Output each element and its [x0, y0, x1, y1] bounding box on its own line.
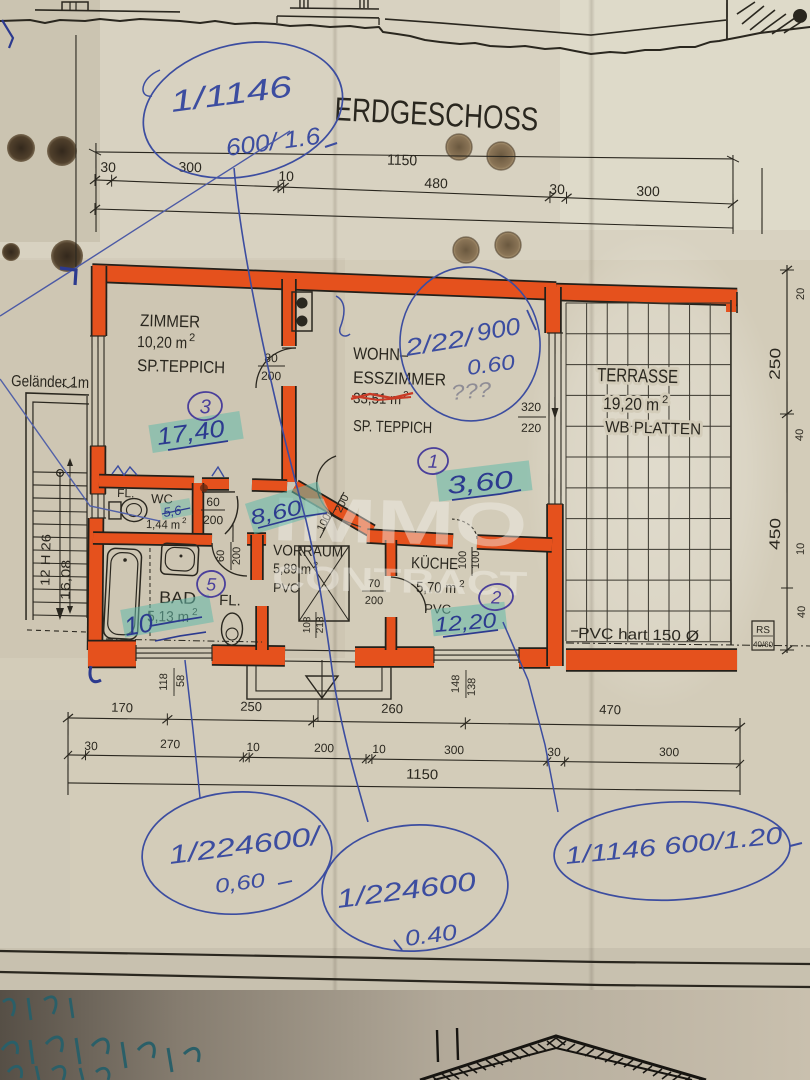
- svg-text:60: 60: [206, 495, 220, 509]
- svg-text:2: 2: [182, 516, 187, 525]
- svg-text:30: 30: [549, 181, 565, 197]
- svg-text:260: 260: [381, 701, 403, 717]
- svg-text:2: 2: [189, 332, 195, 344]
- svg-text:450: 450: [767, 518, 785, 550]
- svg-text:FL.: FL.: [219, 592, 241, 610]
- svg-text:200: 200: [231, 547, 243, 566]
- svg-text:16,08: 16,08: [57, 560, 73, 600]
- svg-text:300: 300: [444, 743, 465, 758]
- svg-text:480: 480: [424, 175, 448, 192]
- svg-text:250: 250: [767, 348, 785, 380]
- svg-text:20: 20: [795, 288, 807, 301]
- svg-text:5: 5: [206, 574, 218, 594]
- svg-text:250: 250: [240, 699, 262, 715]
- svg-text:220: 220: [521, 421, 542, 436]
- svg-text:ESSZIMMER: ESSZIMMER: [353, 368, 446, 389]
- svg-text:148: 148: [450, 675, 462, 694]
- svg-text:WB PLATTEN: WB PLATTEN: [605, 419, 701, 439]
- svg-text:30: 30: [84, 739, 98, 753]
- svg-text:1150: 1150: [406, 766, 439, 783]
- svg-text:10: 10: [122, 607, 156, 642]
- svg-text:1150: 1150: [387, 152, 417, 170]
- svg-text:40: 40: [796, 606, 808, 619]
- svg-text:118: 118: [158, 673, 170, 691]
- svg-text:10: 10: [372, 742, 386, 756]
- svg-text:TERRASSE: TERRASSE: [597, 365, 679, 388]
- svg-text:ZIMMER: ZIMMER: [140, 311, 200, 332]
- svg-text:19,20 m: 19,20 m: [603, 394, 659, 414]
- svg-text:3: 3: [199, 396, 211, 418]
- svg-text:58: 58: [175, 675, 187, 688]
- svg-text:300: 300: [636, 183, 660, 200]
- svg-text:200: 200: [203, 513, 224, 528]
- svg-text:40/60: 40/60: [753, 640, 774, 650]
- svg-text:60: 60: [215, 550, 227, 563]
- svg-text:470: 470: [599, 702, 621, 718]
- svg-text:300: 300: [659, 745, 680, 760]
- svg-text:200: 200: [314, 741, 335, 756]
- svg-text:320: 320: [521, 400, 542, 415]
- svg-text:40: 40: [794, 429, 806, 442]
- svg-text:???: ???: [450, 378, 492, 405]
- svg-text:10,20 m: 10,20 m: [137, 334, 187, 352]
- svg-text:30: 30: [547, 745, 561, 759]
- svg-text:10: 10: [246, 740, 260, 754]
- svg-text:12,20: 12,20: [434, 609, 498, 637]
- svg-text:1: 1: [428, 452, 439, 473]
- svg-text:Geländer 1m: Geländer 1m: [11, 373, 89, 392]
- svg-text:10: 10: [278, 168, 294, 184]
- svg-text:170: 170: [111, 700, 133, 716]
- svg-text:270: 270: [160, 737, 181, 752]
- svg-text:12 H 26: 12 H 26: [37, 534, 53, 586]
- svg-text:PVC hart 150 Ø: PVC hart 150 Ø: [578, 625, 700, 645]
- svg-text:30: 30: [100, 159, 116, 175]
- svg-text:108: 108: [302, 616, 313, 633]
- svg-text:2: 2: [490, 587, 502, 607]
- svg-text:10: 10: [795, 543, 807, 556]
- svg-text:CONTRACT: CONTRACT: [272, 559, 528, 604]
- svg-text:SP. TEPPICH: SP. TEPPICH: [353, 418, 432, 437]
- svg-text:2: 2: [662, 394, 668, 406]
- svg-text:138: 138: [466, 678, 478, 697]
- svg-text:RS: RS: [756, 625, 771, 636]
- svg-text:SP.TEPPICH: SP.TEPPICH: [137, 356, 225, 377]
